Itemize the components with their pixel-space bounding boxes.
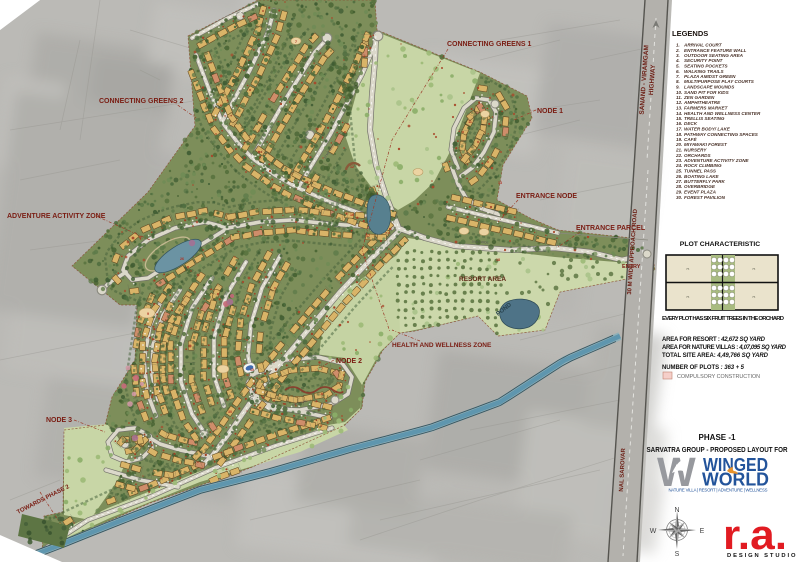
svg-text:NUMBER OF PLOTS : 363 + 5: NUMBER OF PLOTS : 363 + 5 xyxy=(662,365,745,371)
svg-text:7: 7 xyxy=(321,367,323,371)
svg-text:HEALTH AND WELLNESS ZONE: HEALTH AND WELLNESS ZONE xyxy=(392,342,492,349)
svg-text:E: E xyxy=(700,528,705,535)
svg-text:SECURITY POINT: SECURITY POINT xyxy=(684,58,724,63)
svg-text:CAFÉ: CAFÉ xyxy=(684,135,697,142)
svg-text:DECK: DECK xyxy=(684,121,698,126)
svg-text:12.: 12. xyxy=(676,100,682,105)
svg-text:SEATING POCKETS: SEATING POCKETS xyxy=(684,64,728,69)
svg-text:NODE 2: NODE 2 xyxy=(336,358,362,365)
svg-text:16: 16 xyxy=(350,213,354,217)
svg-text:20.: 20. xyxy=(675,142,682,147)
svg-text:25.: 25. xyxy=(675,169,682,174)
svg-text:ROCK CLIMBING: ROCK CLIMBING xyxy=(684,163,722,168)
svg-text:OVERBRIDGE: OVERBRIDGE xyxy=(684,184,716,189)
svg-text:30: 30 xyxy=(228,410,232,414)
svg-text:MIYAWAKI FOREST: MIYAWAKI FOREST xyxy=(684,142,728,147)
svg-text:75: 75 xyxy=(752,295,756,299)
svg-text:17: 17 xyxy=(366,234,370,238)
svg-text:NURSERY: NURSERY xyxy=(684,148,707,153)
svg-text:TUNNEL PASS: TUNNEL PASS xyxy=(684,169,717,174)
svg-text:DESIGN STUDIO: DESIGN STUDIO xyxy=(727,553,797,559)
svg-text:28.: 28. xyxy=(675,184,682,189)
svg-text:ARRIVAL COURT: ARRIVAL COURT xyxy=(683,43,723,48)
svg-text:NATURE VILLA | RESORT | AD: NATURE VILLA | RESORT | ADVENTURE | WELL… xyxy=(669,488,768,493)
svg-text:NODE 1: NODE 1 xyxy=(537,108,563,115)
svg-text:24.: 24. xyxy=(675,163,682,168)
svg-text:75: 75 xyxy=(752,267,756,271)
svg-text:MULTIPURPOSE PLAY COURTS: MULTIPURPOSE PLAY COURTS xyxy=(684,79,755,84)
svg-text:9.: 9. xyxy=(676,85,680,90)
svg-text:AMPHITHEATRE: AMPHITHEATRE xyxy=(683,100,721,105)
svg-text:26: 26 xyxy=(180,257,184,261)
svg-text:ENTRANCE NODE: ENTRANCE NODE xyxy=(516,193,577,200)
svg-text:LANDSCAPE MOUNDS: LANDSCAPE MOUNDS xyxy=(684,85,735,90)
svg-text:EVERY PLOT HAS SIX FRUIT TREES: EVERY PLOT HAS SIX FRUIT TREES IN THE OR… xyxy=(662,316,784,322)
svg-text:13: 13 xyxy=(498,181,502,185)
svg-text:TOTAL SITE AREA: 4,49,766 SQ: TOTAL SITE AREA: 4,49,766 SQ YARD xyxy=(662,353,769,359)
svg-text:PHASE -1: PHASE -1 xyxy=(699,433,736,442)
svg-text:18: 18 xyxy=(496,258,500,262)
svg-text:75: 75 xyxy=(686,267,690,271)
svg-text:AREA FOR RESORT : 42,672 SQ Y: AREA FOR RESORT : 42,672 SQ YARD xyxy=(662,337,766,343)
svg-text:NODE 3: NODE 3 xyxy=(46,417,72,424)
svg-text:PLOT CHARACTERISTIC: PLOT CHARACTERISTIC xyxy=(680,241,761,248)
svg-text:13.: 13. xyxy=(676,106,682,111)
svg-text:RESORT AREA: RESORT AREA xyxy=(459,276,506,283)
svg-text:CONNECTING GREENS 1: CONNECTING GREENS 1 xyxy=(447,41,532,48)
svg-text:S: S xyxy=(675,551,680,558)
svg-text:17.: 17. xyxy=(676,127,682,132)
svg-text:r.a.: r.a. xyxy=(723,511,787,558)
svg-text:N: N xyxy=(674,507,679,514)
svg-text:9: 9 xyxy=(147,312,149,316)
svg-text:LEGENDS: LEGENDS xyxy=(672,29,708,38)
svg-text:7: 7 xyxy=(295,40,297,44)
svg-text:15: 15 xyxy=(250,368,254,372)
svg-text:FOREST PAVILION: FOREST PAVILION xyxy=(684,195,726,200)
svg-text:11: 11 xyxy=(468,120,472,124)
svg-text:16.: 16. xyxy=(676,121,682,126)
svg-text:75: 75 xyxy=(686,295,690,299)
svg-text:COMPULSORY CONSTRUCTION: COMPULSORY CONSTRUCTION xyxy=(677,374,760,380)
svg-text:CONNECTING GREENS 2: CONNECTING GREENS 2 xyxy=(99,98,184,105)
svg-text:12: 12 xyxy=(350,165,354,169)
svg-text:30.: 30. xyxy=(676,195,682,200)
svg-text:FARMERS MARKET: FARMERS MARKET xyxy=(684,106,729,111)
svg-text:ADVENTURE ACTIVITY ZONE: ADVENTURE ACTIVITY ZONE xyxy=(7,213,106,220)
svg-text:4.: 4. xyxy=(675,58,680,63)
svg-text:EVENT PLAZA: EVENT PLAZA xyxy=(684,190,716,195)
svg-text:1.: 1. xyxy=(676,43,680,48)
svg-text:5.: 5. xyxy=(676,64,680,69)
svg-text:8.: 8. xyxy=(676,79,680,84)
svg-text:AREA FOR NATURE VILLAS : 4,07: AREA FOR NATURE VILLAS : 4,07,095 SQ YAR… xyxy=(662,345,787,351)
svg-text:WATER BODY/ LAKE: WATER BODY/ LAKE xyxy=(684,127,731,132)
svg-text:W: W xyxy=(650,528,657,535)
svg-text:29.: 29. xyxy=(675,190,682,195)
svg-text:21.: 21. xyxy=(675,148,682,153)
